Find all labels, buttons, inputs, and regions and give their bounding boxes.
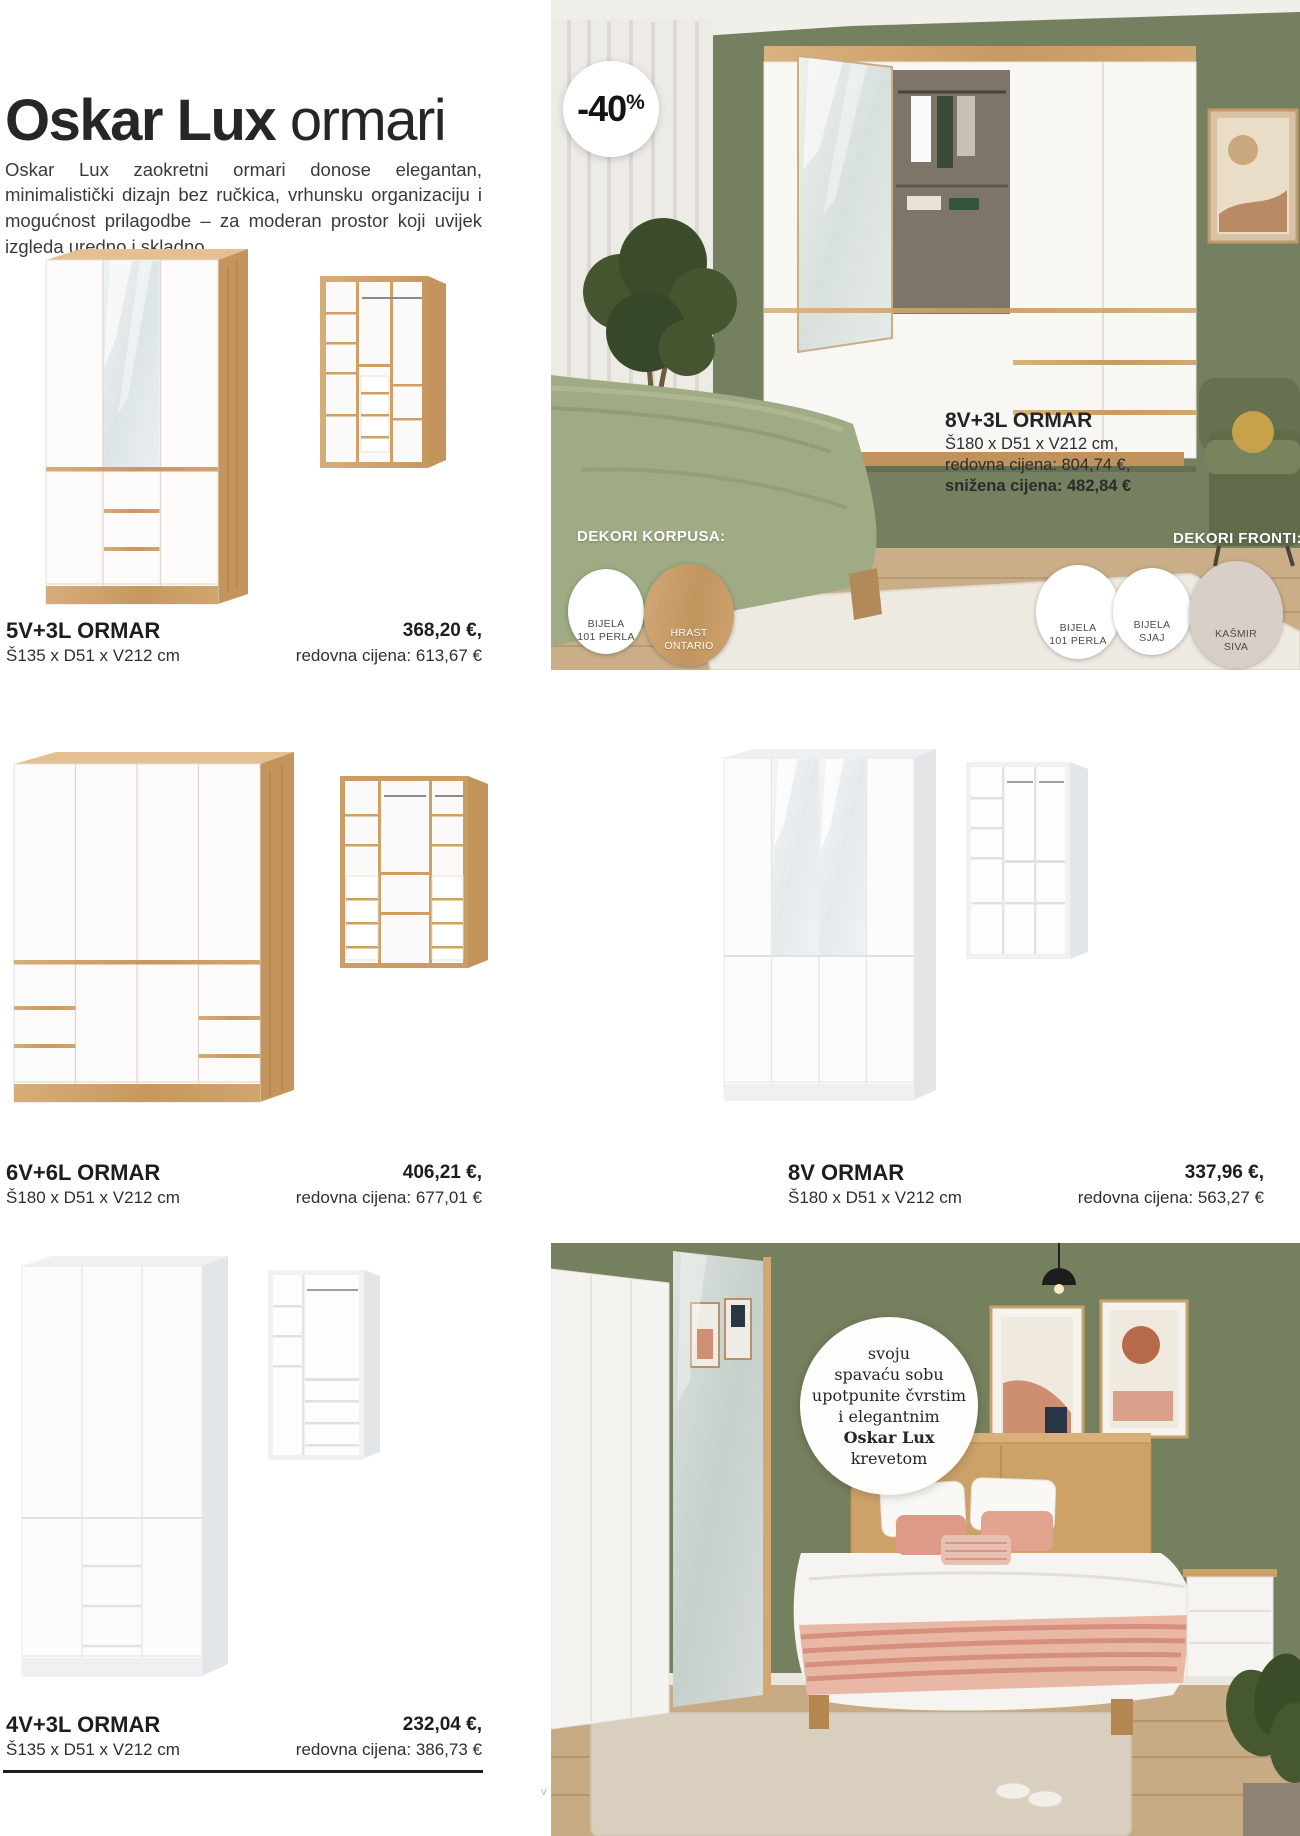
product-name: 8V ORMAR <box>788 1160 962 1186</box>
swatch-korpus-hrast-ontario: HRAST ONTARIO <box>644 564 734 666</box>
swatch-label: 101 PERLA <box>1049 635 1107 649</box>
promo-line: svoju <box>812 1343 966 1364</box>
swatch-korpus-bijela-101-perla: BIJELA 101 PERLA <box>568 569 644 654</box>
footer-rule <box>3 1770 483 1773</box>
product-prices: 232,04 €, redovna cijena: 386,73 € <box>296 1712 482 1762</box>
product-prices: 368,20 €, redovna cijena: 613,67 € <box>296 618 482 668</box>
promo-line: upotpunite čvrstim <box>812 1385 966 1406</box>
product-prices: 337,96 €, redovna cijena: 563,27 € <box>1078 1160 1264 1210</box>
promo-line: i elegantnim <box>812 1406 966 1427</box>
product-image-5v3l <box>40 246 262 623</box>
product-row-8v: 8V ORMAR Š180 x D51 x V212 cm 337,96 €, … <box>788 1160 1264 1210</box>
product-row-6v6l: 6V+6L ORMAR Š180 x D51 x V212 cm 406,21 … <box>6 1160 482 1210</box>
product-regular-price: redovna cijena: 386,73 € <box>296 1738 482 1762</box>
hero-product-dimensions: Š180 x D51 x V212 cm, <box>945 434 1245 455</box>
swatch-fronti-bijela-101-perla: BIJELA 101 PERLA <box>1036 565 1120 659</box>
product-interior-image-4v3l <box>264 1260 386 1479</box>
product-dimensions: Š180 x D51 x V212 cm <box>788 1186 962 1210</box>
hero-scene <box>551 0 1300 670</box>
swatch-fronti-kasmir-siva: KAŠMIR SIVA <box>1189 561 1283 668</box>
mirror-wardrobe <box>551 1251 771 1729</box>
product-name: 4V+3L ORMAR <box>6 1712 180 1738</box>
product-text: 5V+3L ORMAR Š135 x D51 x V212 cm <box>6 618 180 668</box>
rug <box>591 1713 1131 1836</box>
swatch-label: 101 PERLA <box>577 631 635 645</box>
product-text: 6V+6L ORMAR Š180 x D51 x V212 cm <box>6 1160 180 1210</box>
product-regular-price: redovna cijena: 613,67 € <box>296 644 482 668</box>
product-interior-image-5v3l <box>316 264 454 481</box>
product-interior-image-8v <box>962 752 1094 975</box>
nightstand <box>1183 1569 1277 1677</box>
swatch-fronti-bijela-sjaj: BIJELA SJAJ <box>1113 568 1191 655</box>
catalog-page: Oskar Lux ormari Oskar Lux zaokretni orm… <box>0 0 1300 1836</box>
product-image-6v6l <box>8 748 300 1119</box>
product-prices: 406,21 €, redovna cijena: 677,01 € <box>296 1160 482 1210</box>
swatch-label: BIJELA <box>1134 619 1171 633</box>
promo-line: krevetom <box>812 1448 966 1469</box>
promo-bedroom-photo: svoju spavaću sobu upotpunite čvrstim i … <box>551 1243 1300 1836</box>
product-sale-price: 232,04 €, <box>296 1712 482 1738</box>
intro-paragraph: Oskar Lux zaokretni ormari donose elegan… <box>5 157 482 261</box>
hero-product-info: 8V+3L ORMAR Š180 x D51 x V212 cm, redovn… <box>945 408 1245 497</box>
product-name: 5V+3L ORMAR <box>6 618 180 644</box>
promo-line-brand: Oskar Lux <box>812 1427 966 1448</box>
promo-line: spavaću sobu <box>812 1364 966 1385</box>
product-name: 6V+6L ORMAR <box>6 1160 180 1186</box>
hero-product-name: 8V+3L ORMAR <box>945 408 1245 434</box>
product-text: 4V+3L ORMAR Š135 x D51 x V212 cm <box>6 1712 180 1762</box>
hero-regular-price: redovna cijena: 804,74 €, <box>945 455 1245 476</box>
swatch-label: BIJELA <box>1060 622 1097 636</box>
wall-art-frame <box>1209 110 1297 242</box>
product-image-4v3l <box>16 1250 236 1701</box>
hero-bedroom-photo: 8V+3L ORMAR Š180 x D51 x V212 cm, redovn… <box>551 0 1300 670</box>
page-title: Oskar Lux ormari <box>5 91 445 152</box>
product-regular-price: redovna cijena: 677,01 € <box>296 1186 482 1210</box>
swatch-label: SJAJ <box>1139 632 1165 646</box>
product-dimensions: Š135 x D51 x V212 cm <box>6 1738 180 1762</box>
page-title-brand: Oskar Lux <box>5 88 275 153</box>
swatch-label: KAŠMIR <box>1215 628 1257 642</box>
swatch-label: ONTARIO <box>664 640 713 654</box>
product-sale-price: 337,96 €, <box>1078 1160 1264 1186</box>
product-row-5v3l: 5V+3L ORMAR Š135 x D51 x V212 cm 368,20 … <box>6 618 482 668</box>
product-text: 8V ORMAR Š180 x D51 x V212 cm <box>788 1160 962 1210</box>
product-dimensions: Š180 x D51 x V212 cm <box>6 1186 180 1210</box>
discount-value: -40 <box>577 88 626 130</box>
promo-circle: svoju spavaću sobu upotpunite čvrstim i … <box>800 1317 978 1495</box>
promo-circle-text: svoju spavaću sobu upotpunite čvrstim i … <box>812 1343 966 1470</box>
dekori-korpusa-label: DEKORI KORPUSA: <box>577 528 726 545</box>
product-sale-price: 368,20 €, <box>296 618 482 644</box>
percent-sign: % <box>626 91 645 115</box>
swatch-label: HRAST <box>670 627 707 641</box>
product-row-4v3l: 4V+3L ORMAR Š135 x D51 x V212 cm 232,04 … <box>6 1712 482 1762</box>
product-sale-price: 406,21 €, <box>296 1160 482 1186</box>
swatch-label: SIVA <box>1224 641 1248 655</box>
product-dimensions: Š135 x D51 x V212 cm <box>6 644 180 668</box>
watermark: v <box>541 1786 547 1798</box>
hero-sale-price: snižena cijena: 482,84 € <box>945 476 1245 497</box>
product-regular-price: redovna cijena: 563,27 € <box>1078 1186 1264 1210</box>
product-image-8v <box>718 744 940 1119</box>
dekori-fronti-label: DEKORI FRONTI: <box>1173 530 1300 547</box>
product-interior-image-6v6l <box>336 764 494 981</box>
page-title-suffix: ormari <box>290 88 445 153</box>
swatch-label: BIJELA <box>588 618 625 632</box>
discount-badge: -40% <box>563 61 659 157</box>
